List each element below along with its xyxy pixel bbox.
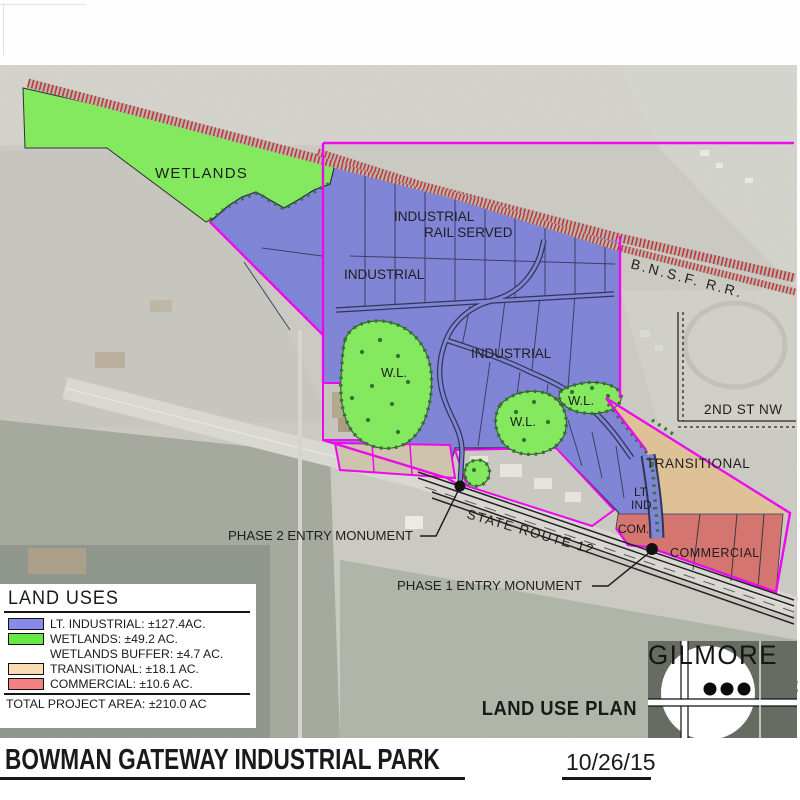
wetland-label-c: W.L. xyxy=(568,393,594,408)
legend-row-wetlands-buffer: WETLANDS BUFFER: ±4.7 AC. xyxy=(8,646,256,661)
industrial-rail-label-line1: INDUSTRIAL xyxy=(394,209,475,224)
lt-ind-label-line2: IND. xyxy=(631,498,655,512)
industrial-nw-label: INDUSTRIAL xyxy=(344,267,425,282)
commercial-label: COMMERCIAL xyxy=(670,546,760,560)
commercial-swatch xyxy=(8,678,44,690)
project-title: BOWMAN GATEWAY INDUSTRIAL PARK xyxy=(5,744,440,777)
lt-industrial-swatch xyxy=(8,618,44,630)
land-use-plan-sheet: WETLANDS INDUSTRIAL RAIL SERVED INDUSTRI… xyxy=(0,0,800,800)
legend-divider-top xyxy=(4,611,250,613)
transitional-label: TRANSITIONAL xyxy=(646,456,750,471)
legend-panel: LAND USES LT. INDUSTRIAL: ±127.4AC. WETL… xyxy=(0,584,256,728)
com-label: COM. xyxy=(618,522,649,536)
wetlands-label: WETLANDS xyxy=(155,165,248,182)
firm-name: GILMORE xyxy=(648,640,795,671)
industrial-central-label: INDUSTRIAL xyxy=(471,346,552,361)
scan-artifact xyxy=(3,3,4,55)
legend-row-lt-industrial: LT. INDUSTRIAL: ±127.4AC. xyxy=(8,616,256,631)
legend-title: LAND USES xyxy=(8,588,244,610)
wetland-label-a: W.L. xyxy=(381,365,407,380)
legend-row-commercial: COMMERCIAL: ±10.6 AC. xyxy=(8,676,256,691)
wetland-label-b: W.L. xyxy=(510,414,536,429)
industrial-rail-label-line2: RAIL SERVED xyxy=(424,225,513,240)
phase2-monument-label: PHASE 2 ENTRY MONUMENT xyxy=(228,528,413,543)
plan-date: 10/26/15 xyxy=(566,749,656,776)
date-underline xyxy=(562,777,651,780)
scan-artifact xyxy=(0,4,86,5)
legend-divider-bottom xyxy=(4,693,250,695)
title-underline xyxy=(0,777,465,780)
lt-ind-label-line1: LT. xyxy=(634,485,649,499)
legend-row-transitional: TRANSITIONAL: ±18.1 AC. xyxy=(8,661,256,676)
legend-row-wetlands: WETLANDS: ±49.2 AC. xyxy=(8,631,256,646)
second-st-nw-label: 2ND ST NW xyxy=(704,402,783,417)
phase1-monument-label: PHASE 1 ENTRY MONUMENT xyxy=(397,578,582,593)
title-bar: BOWMAN GATEWAY INDUSTRIAL PARK 10/26/15 xyxy=(0,738,800,800)
wetlands-swatch xyxy=(8,633,44,645)
wetlands-buffer-swatch xyxy=(8,648,44,660)
transitional-swatch xyxy=(8,663,44,675)
plan-title: LAND USE PLAN xyxy=(470,698,637,721)
legend-total: TOTAL PROJECT AREA: ±210.0 AC xyxy=(6,697,207,711)
